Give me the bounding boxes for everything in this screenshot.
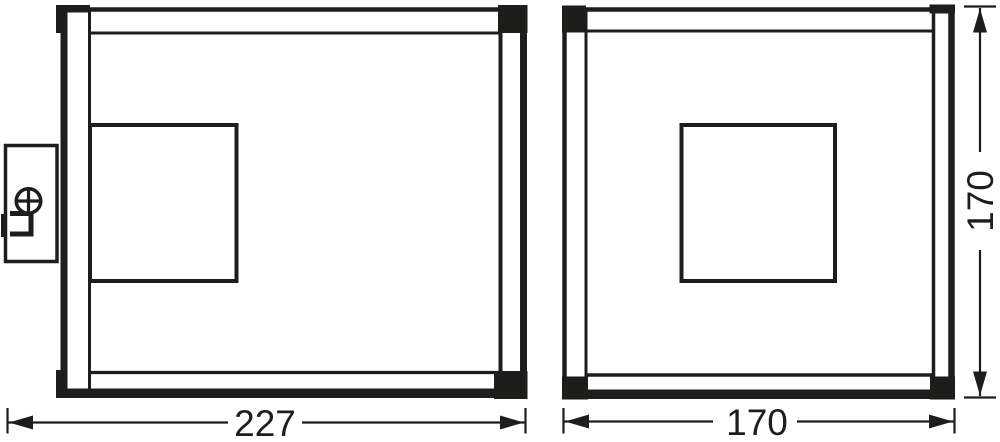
side-view-inner-module-square: [90, 125, 237, 281]
bracket-hook: [10, 214, 31, 235]
arrowhead-right-icon: [929, 415, 953, 429]
housing-bottom-bar: [562, 390, 955, 400]
dimension-side-width: 227: [8, 403, 526, 442]
side-view: [3, 5, 528, 399]
housing-bottom-left-corner-block: [562, 377, 588, 400]
dimension-label-front-width: 170: [726, 402, 788, 442]
dimension-front-height: 170: [960, 7, 1000, 398]
front-view: [562, 5, 955, 400]
luminaire-dimension-drawing: 227 170 170: [0, 0, 1000, 442]
housing-top-right-corner-block: [498, 5, 528, 33]
technical-drawing-canvas: 227 170 170: [0, 0, 1000, 442]
front-view-housing-outline: [562, 5, 955, 400]
wall-mount-bracket: [3, 146, 57, 262]
front-view-inner-module-square: [682, 125, 836, 281]
housing-bottom-bar: [56, 389, 528, 399]
side-view-housing-outline: [56, 5, 528, 399]
dimension-label-front-height: 170: [960, 170, 1000, 232]
dimension-front-width: 170: [564, 402, 955, 442]
housing-bottom-right-corner-block: [930, 377, 955, 400]
arrowhead-left-icon: [565, 415, 589, 429]
arrowhead-left-icon: [9, 416, 33, 430]
arrowhead-down-icon: [973, 372, 987, 396]
housing-top-left-corner-block: [562, 6, 586, 33]
arrowhead-up-icon: [973, 9, 987, 33]
dimension-label-side-width: 227: [234, 403, 296, 442]
housing-bottom-left-corner-block: [56, 370, 62, 398]
arrowhead-right-icon: [500, 416, 524, 430]
housing-top-right-cap: [930, 5, 956, 14]
